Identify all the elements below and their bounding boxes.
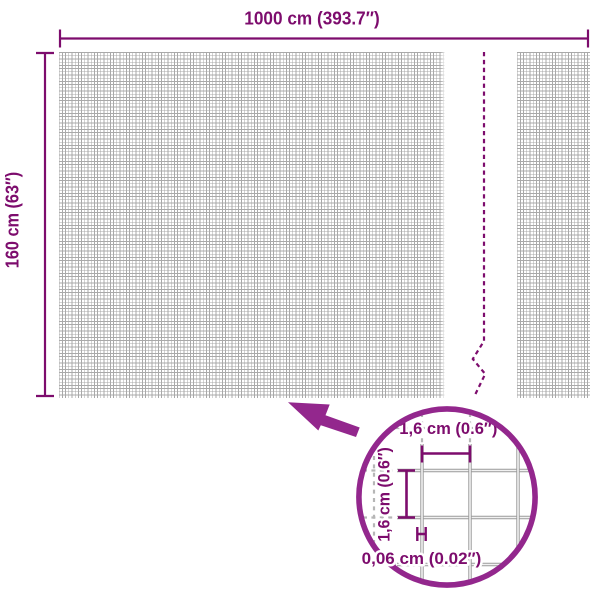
svg-text:1000 cm (393.7″): 1000 cm (393.7″) (244, 8, 379, 29)
svg-text:1,6 cm (0.6″): 1,6 cm (0.6″) (375, 447, 394, 542)
svg-text:0,06 cm (0.02″): 0,06 cm (0.02″) (362, 549, 482, 568)
svg-text:1,6 cm (0.6″): 1,6 cm (0.6″) (399, 419, 497, 438)
svg-text:160 cm (63″): 160 cm (63″) (2, 172, 23, 268)
